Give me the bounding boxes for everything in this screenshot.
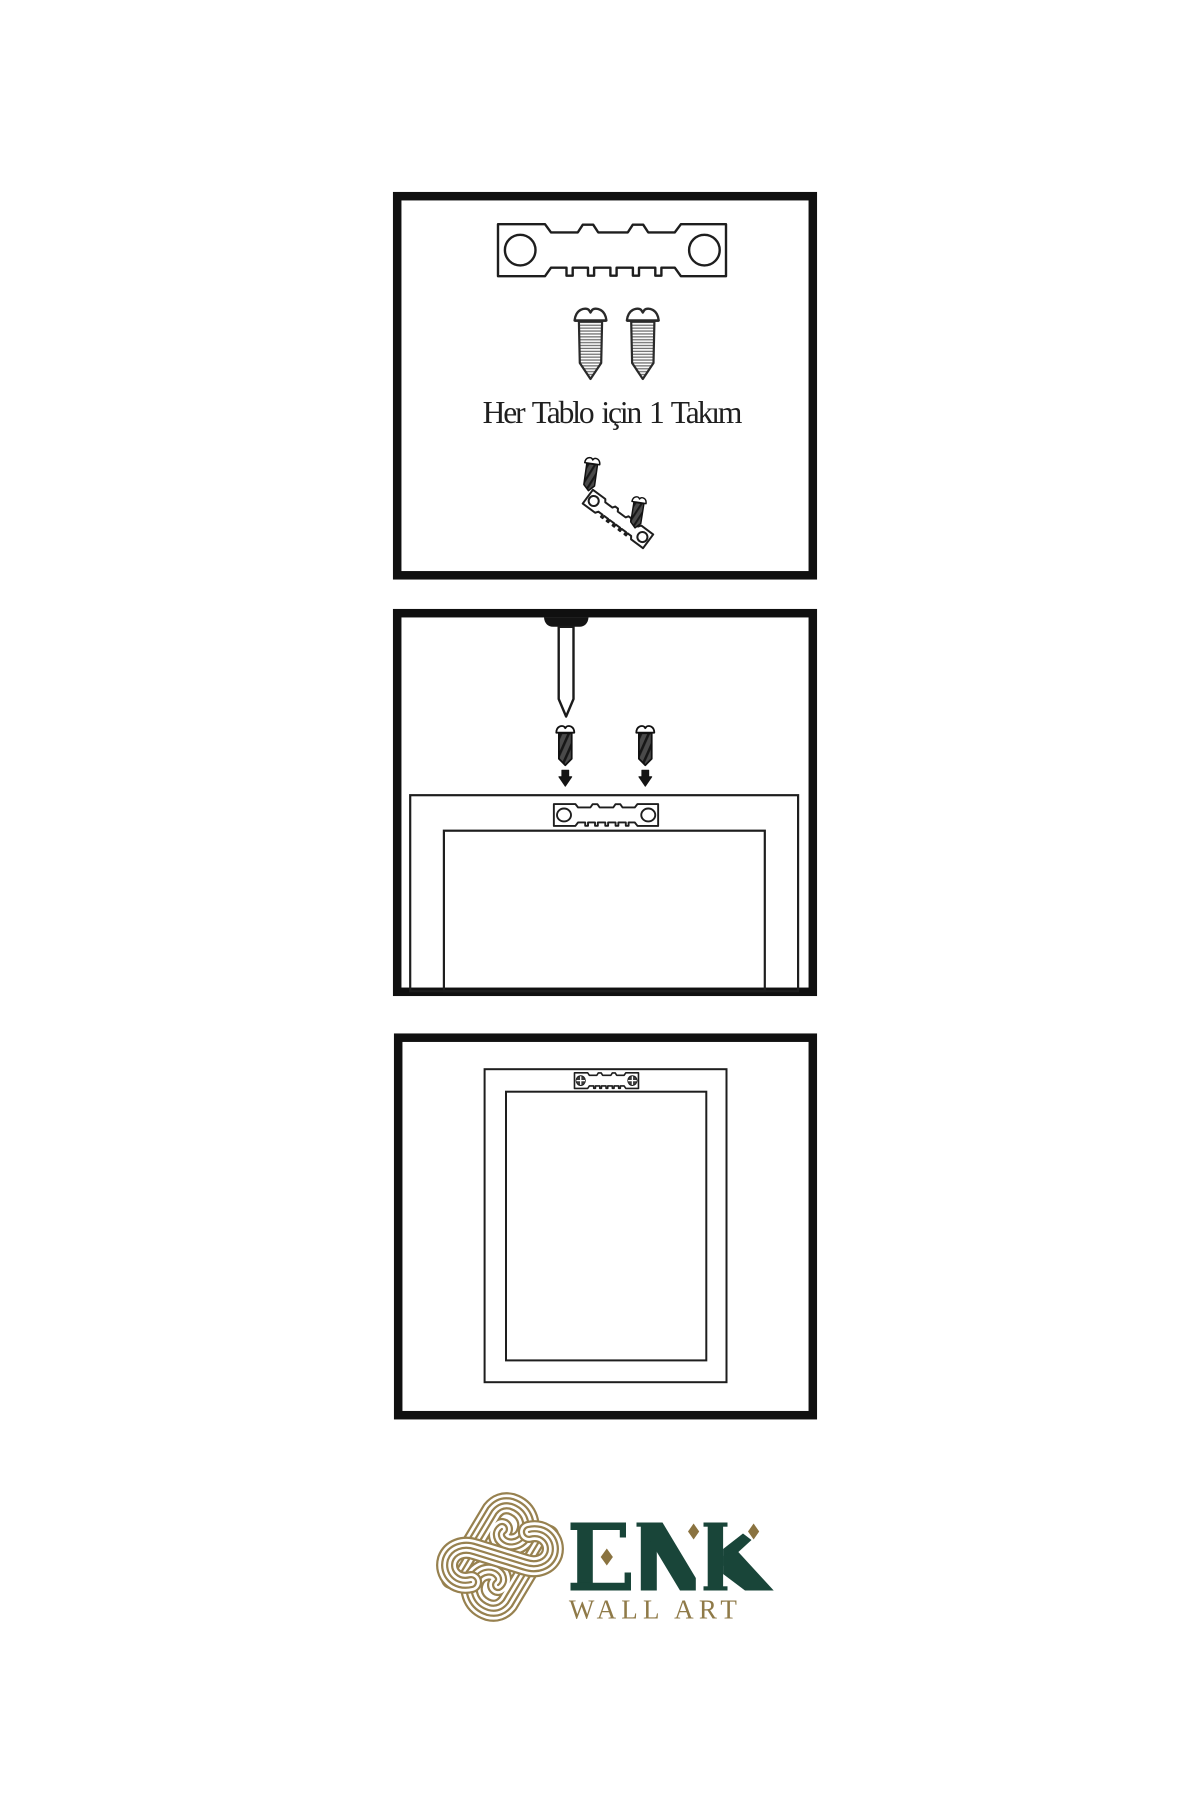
svg-text:WALL ART: WALL ART: [569, 1595, 742, 1625]
svg-text:Her Tablo için 1 Takım: Her Tablo için 1 Takım: [483, 395, 743, 430]
